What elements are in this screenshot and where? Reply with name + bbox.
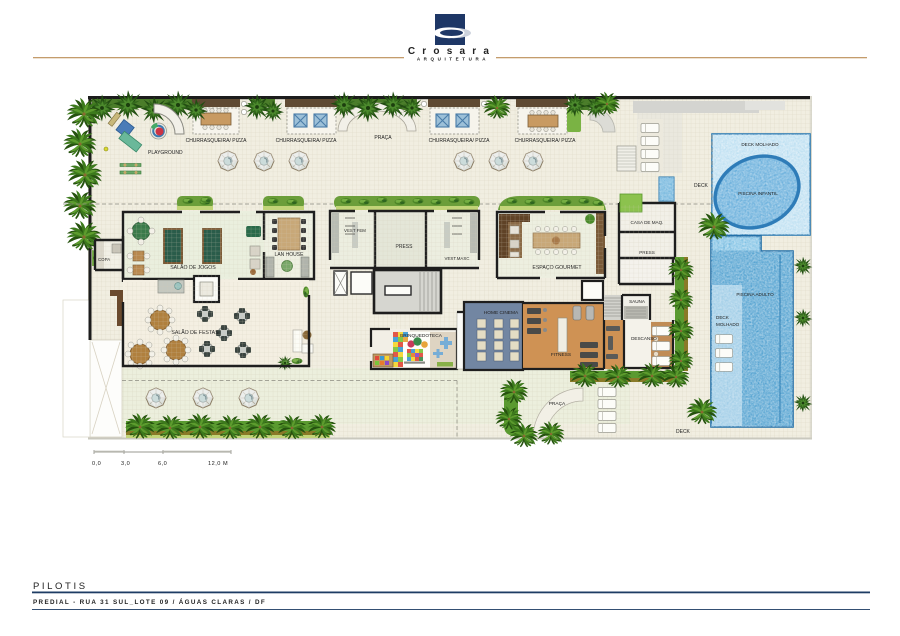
- svg-text:PISCINA INFANTIL: PISCINA INFANTIL: [738, 191, 778, 196]
- svg-text:ESPAÇO GOURMET: ESPAÇO GOURMET: [532, 265, 582, 271]
- svg-text:6,0: 6,0: [158, 461, 167, 467]
- svg-text:MOLHADO: MOLHADO: [716, 322, 740, 327]
- svg-text:PLAYGROUND: PLAYGROUND: [148, 150, 183, 156]
- svg-text:SALÃO DE FESTAS: SALÃO DE FESTAS: [171, 329, 219, 336]
- svg-text:BRINQUEDOTECA: BRINQUEDOTECA: [400, 333, 443, 339]
- svg-text:SALÃO DE JOGOS: SALÃO DE JOGOS: [170, 264, 216, 271]
- svg-text:DECK MOLHADO: DECK MOLHADO: [741, 142, 779, 147]
- svg-text:FITNESS: FITNESS: [551, 352, 571, 358]
- svg-text:CHURRASQUEIRA/ PIZZA: CHURRASQUEIRA/ PIZZA: [186, 138, 248, 144]
- svg-text:PILOTIS: PILOTIS: [33, 581, 88, 592]
- svg-text:LAN HOUSE: LAN HOUSE: [275, 252, 305, 258]
- svg-text:Crosara: Crosara: [408, 46, 496, 57]
- svg-text:VEST FEM: VEST FEM: [344, 228, 366, 233]
- svg-text:PRESS: PRESS: [639, 250, 655, 255]
- svg-text:DECK: DECK: [694, 183, 709, 189]
- svg-text:CHURRASQUEIRA/ PIZZA: CHURRASQUEIRA/ PIZZA: [276, 138, 338, 144]
- svg-text:HOME CINEMA: HOME CINEMA: [484, 310, 519, 316]
- svg-text:PRAÇA: PRAÇA: [374, 135, 392, 141]
- svg-text:DECK: DECK: [676, 429, 691, 435]
- svg-text:DECK: DECK: [716, 315, 730, 320]
- svg-text:DESCANSO: DESCANSO: [631, 336, 657, 341]
- svg-text:12,0 M: 12,0 M: [208, 461, 228, 467]
- svg-text:3,0: 3,0: [121, 461, 130, 467]
- svg-text:COPA: COPA: [98, 257, 110, 262]
- svg-text:CHURRASQUEIRA/ PIZZA: CHURRASQUEIRA/ PIZZA: [429, 138, 491, 144]
- svg-text:CHURRASQUEIRA/ PIZZA: CHURRASQUEIRA/ PIZZA: [515, 138, 577, 144]
- svg-text:0,0: 0,0: [92, 461, 101, 467]
- svg-text:PRESS: PRESS: [396, 244, 414, 250]
- svg-text:PRAÇA: PRAÇA: [549, 401, 566, 407]
- svg-text:CASA DE MAQ.: CASA DE MAQ.: [631, 220, 664, 225]
- svg-text:ARQUITETURA: ARQUITETURA: [417, 57, 489, 62]
- svg-text:VEST.MASC: VEST.MASC: [445, 256, 470, 261]
- svg-text:SAUNA: SAUNA: [629, 299, 646, 304]
- svg-text:PREDIAL - RUA 31 SUL_LOTE 09 /: PREDIAL - RUA 31 SUL_LOTE 09 / ÁGUAS CLA…: [33, 597, 266, 606]
- svg-text:PISCINA ADULTO: PISCINA ADULTO: [736, 292, 774, 297]
